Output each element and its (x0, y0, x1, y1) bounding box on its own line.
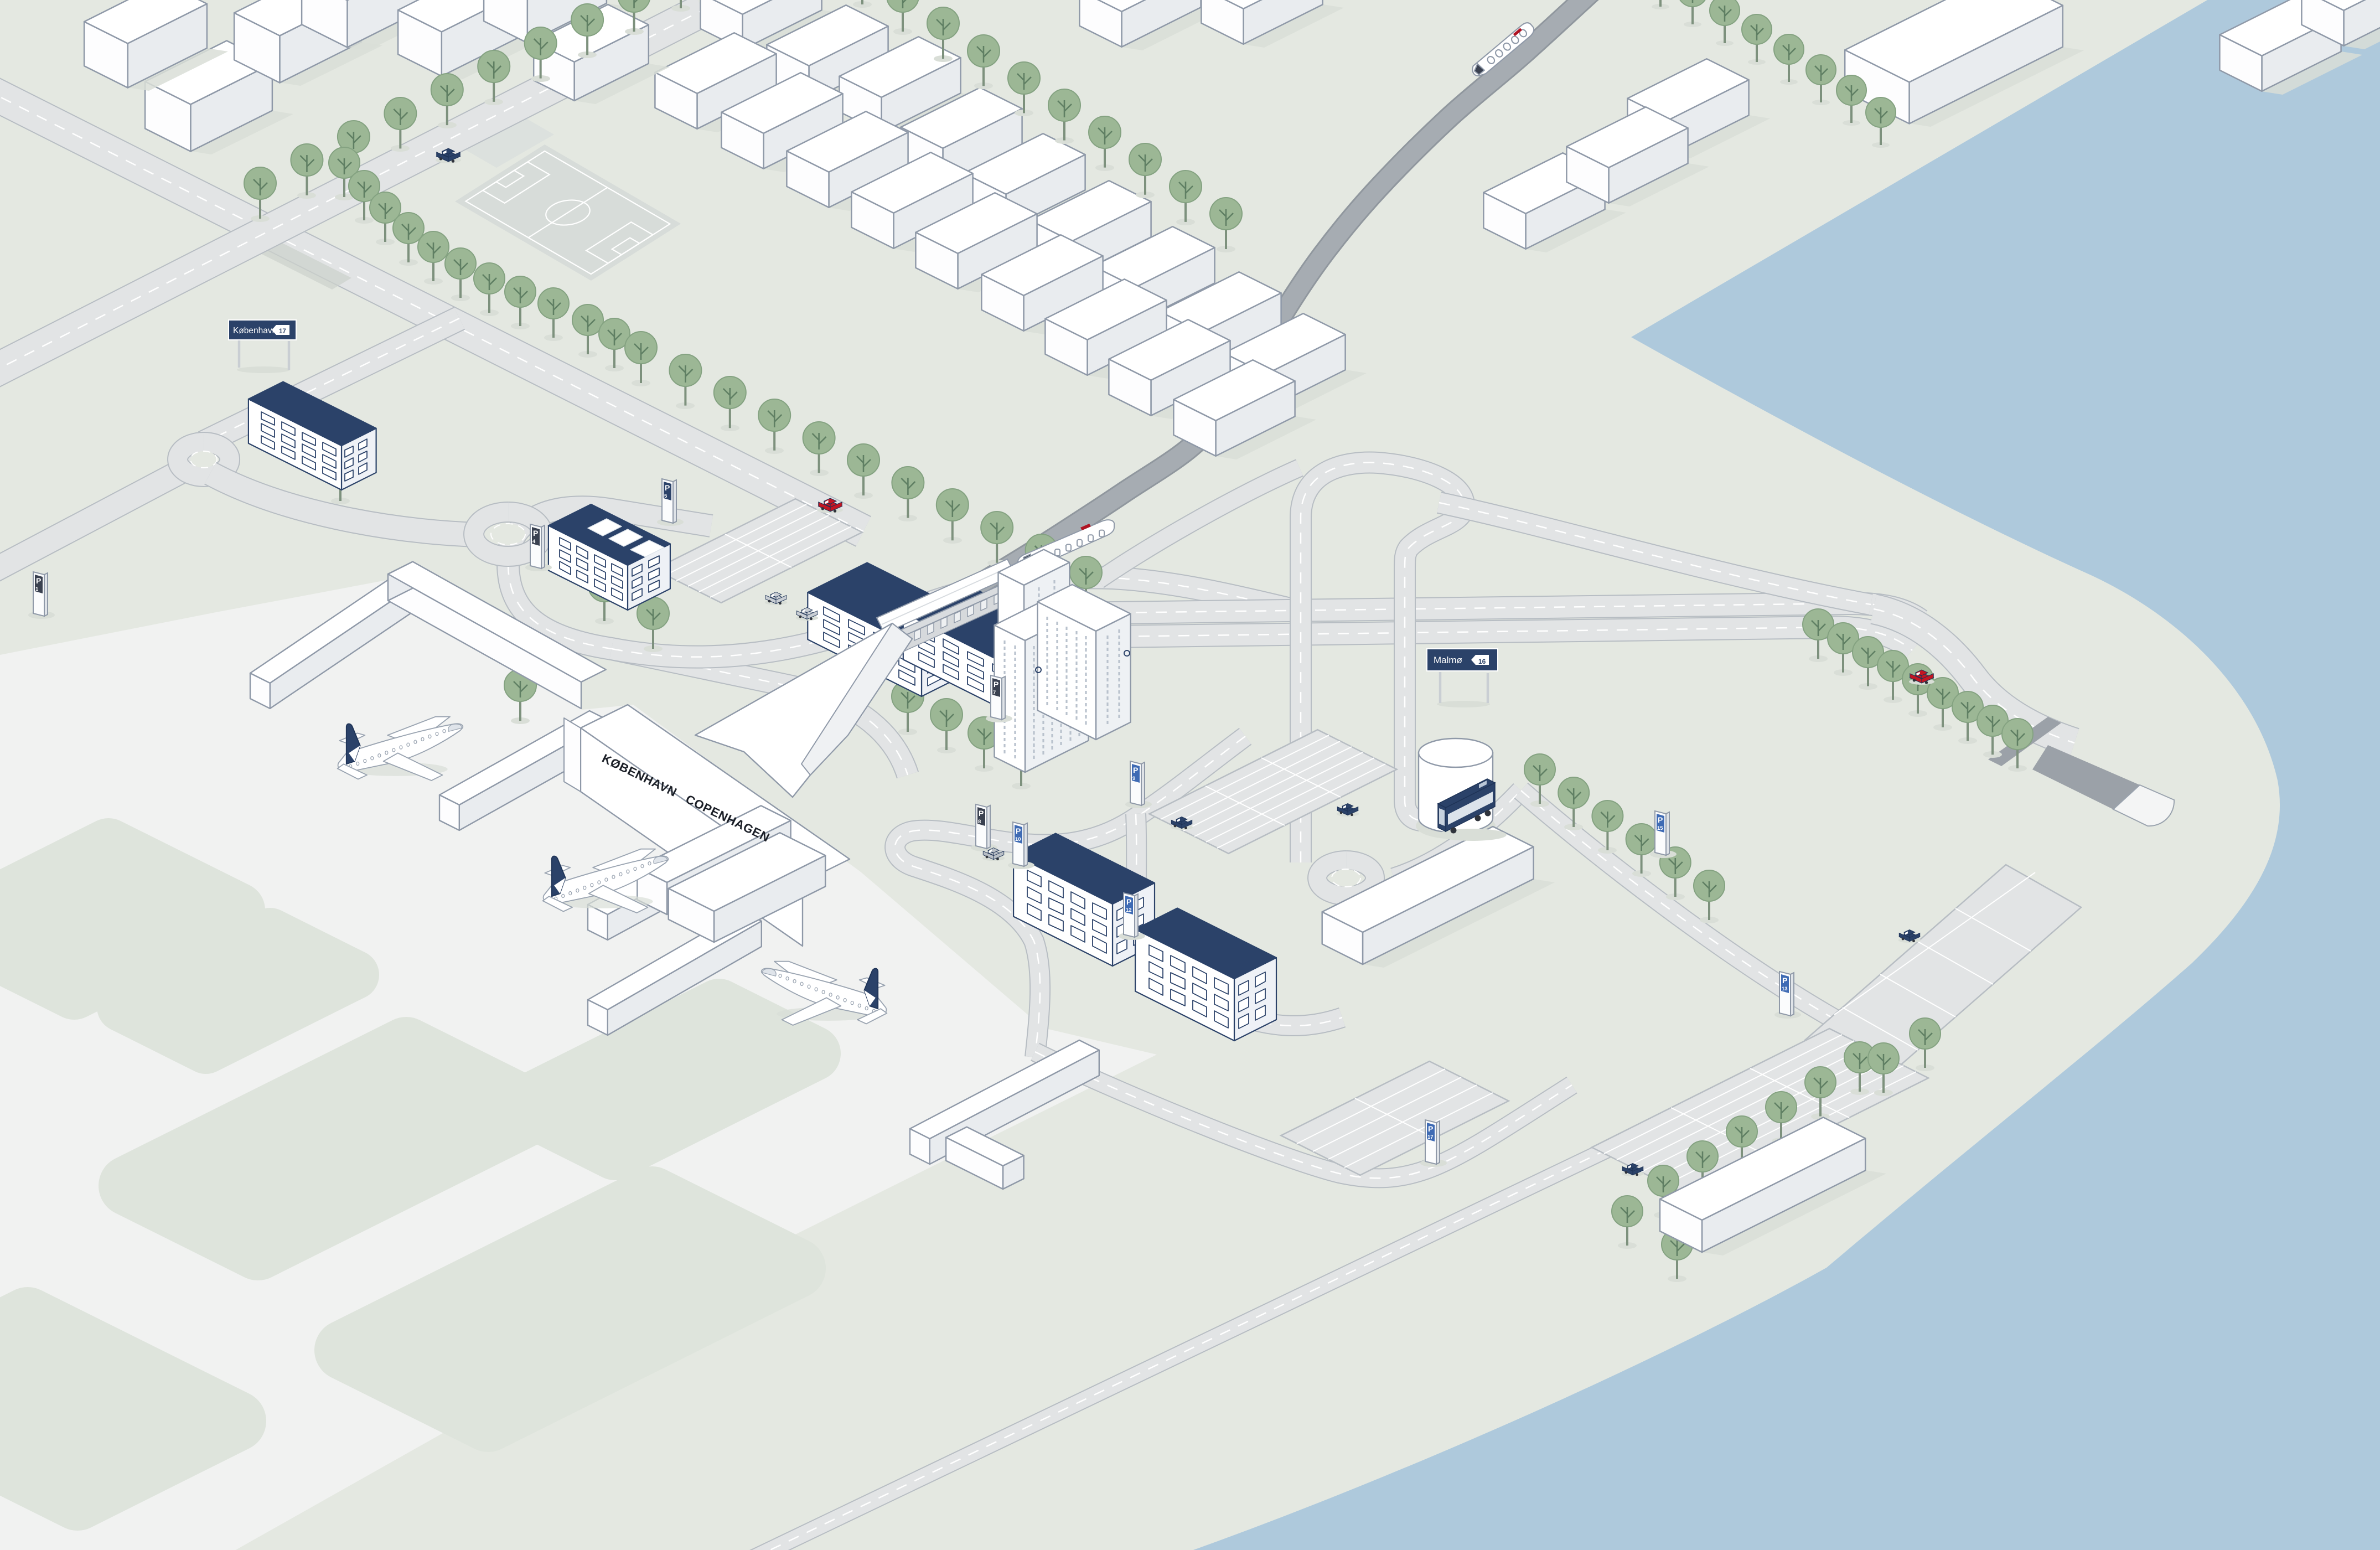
svg-text:P: P (665, 483, 670, 492)
svg-text:P: P (1126, 897, 1131, 906)
svg-text:7: 7 (993, 690, 996, 696)
svg-text:P: P (994, 680, 998, 689)
svg-text:1: 1 (35, 586, 39, 592)
svg-text:15: 15 (1657, 825, 1663, 831)
svg-text:P: P (533, 529, 538, 538)
svg-text:P: P (1428, 1124, 1433, 1133)
svg-text:5: 5 (664, 493, 668, 499)
svg-text:Malmø: Malmø (1434, 655, 1462, 665)
svg-text:16: 16 (1478, 658, 1486, 665)
svg-text:P: P (1658, 815, 1663, 824)
svg-text:P: P (36, 576, 41, 585)
svg-text:P: P (1016, 826, 1021, 835)
svg-text:13: 13 (1782, 986, 1788, 992)
svg-text:17: 17 (279, 328, 286, 335)
svg-text:4: 4 (532, 539, 536, 545)
svg-text:P: P (1782, 976, 1787, 985)
svg-text:København: København (233, 326, 277, 335)
svg-text:9: 9 (1132, 776, 1135, 782)
svg-text:P: P (1133, 766, 1138, 774)
svg-text:17: 17 (1427, 1134, 1434, 1140)
svg-text:8: 8 (978, 819, 981, 825)
svg-text:10: 10 (1015, 836, 1021, 843)
svg-text:12: 12 (1126, 907, 1132, 913)
svg-text:P: P (979, 809, 984, 818)
